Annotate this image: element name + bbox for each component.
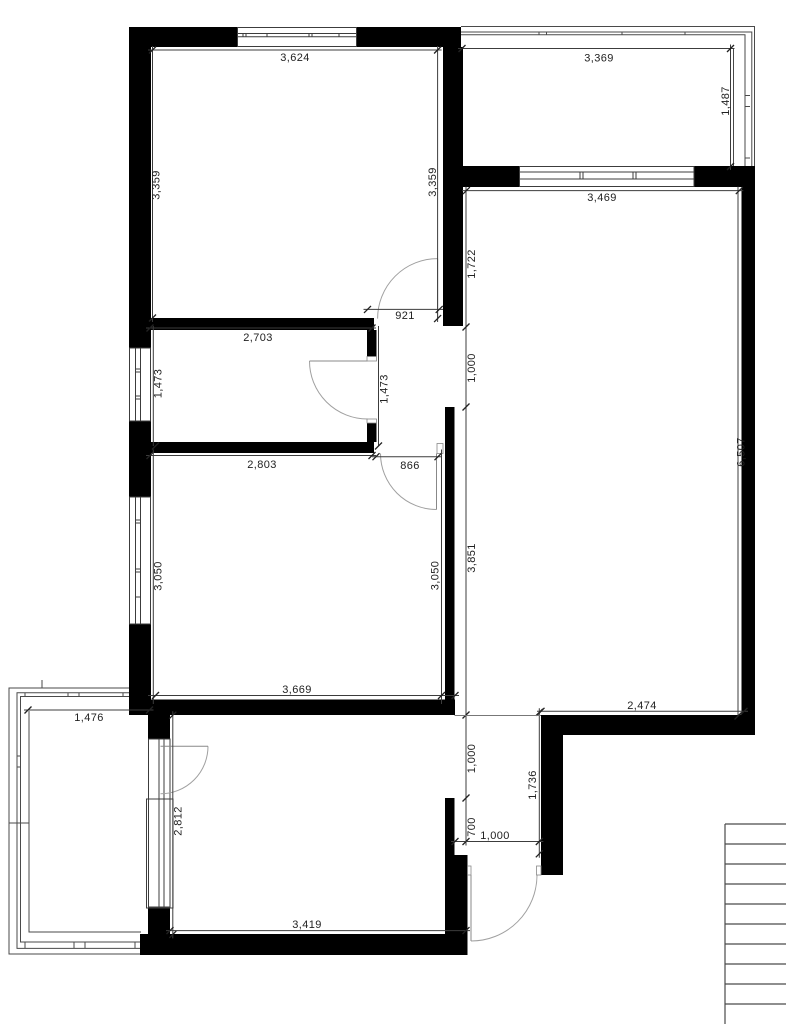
svg-text:1,736: 1,736 xyxy=(527,770,539,800)
svg-text:700: 700 xyxy=(466,817,478,837)
svg-text:3,469: 3,469 xyxy=(587,192,617,204)
svg-text:3,419: 3,419 xyxy=(292,919,322,931)
svg-text:3,369: 3,369 xyxy=(584,53,614,65)
svg-text:1,473: 1,473 xyxy=(152,369,164,399)
svg-text:2,474: 2,474 xyxy=(627,700,657,712)
svg-text:1,476: 1,476 xyxy=(74,712,104,724)
svg-text:1,473: 1,473 xyxy=(378,374,390,404)
svg-text:2,703: 2,703 xyxy=(243,332,273,344)
svg-text:3,359: 3,359 xyxy=(427,167,439,197)
svg-text:1,487: 1,487 xyxy=(720,86,732,116)
svg-text:3,050: 3,050 xyxy=(430,561,442,591)
svg-text:921: 921 xyxy=(395,310,415,322)
svg-text:6,507: 6,507 xyxy=(736,437,748,467)
svg-text:3,624: 3,624 xyxy=(280,52,310,64)
svg-text:3,359: 3,359 xyxy=(150,170,162,200)
svg-text:3,050: 3,050 xyxy=(152,561,164,591)
svg-text:1,000: 1,000 xyxy=(466,353,478,383)
svg-text:2,803: 2,803 xyxy=(247,459,277,471)
svg-text:1,722: 1,722 xyxy=(466,249,478,279)
svg-text:3,851: 3,851 xyxy=(466,543,478,573)
svg-text:1,000: 1,000 xyxy=(480,830,510,842)
svg-text:866: 866 xyxy=(400,460,420,472)
svg-text:3,669: 3,669 xyxy=(282,684,312,696)
svg-text:2,812: 2,812 xyxy=(173,806,185,836)
svg-text:1,000: 1,000 xyxy=(466,744,478,774)
